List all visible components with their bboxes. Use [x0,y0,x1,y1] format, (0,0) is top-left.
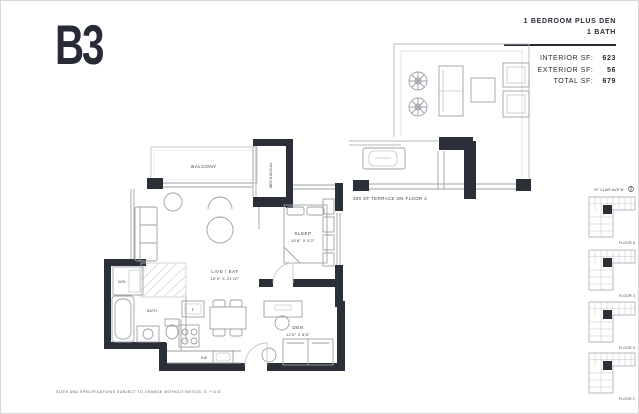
floor-plan-drawing: BALCONY MECHANICAL [1,1,639,414]
round-table [207,217,233,243]
bathtub [115,299,131,339]
bath-sink [143,329,153,339]
round-chair [164,193,182,211]
terrace-table [471,78,495,102]
arch-chair [208,197,232,209]
entry-vestibule-hatch [141,263,186,297]
disclaimer-text: SIZES AND SPECIFICATIONS SUBJECT TO CHAN… [56,390,222,394]
bbq-counter [363,148,405,169]
keyplan-floor-5 [589,197,635,237]
closet [323,199,334,214]
desk-chair [275,316,289,330]
sleep-dims: 10'6" X 9'2" [291,238,315,243]
keyplan-floor-5-label: FLOOR 5 [619,241,635,245]
den-label: DEN [292,325,303,330]
dining-table [210,300,246,336]
bedroom-door [273,263,293,283]
keyplan-floor-4-label: FLOOR 4 [619,294,635,298]
mechanical-room: MECHANICAL [253,139,293,208]
terrace-furniture [363,63,529,169]
fridge-label: F [192,308,195,312]
window-walls [131,185,340,342]
floorplan-sheet: B3 1 BEDROOM PLUS DEN 1 BATH INTERIOR SF… [0,0,639,414]
living-area [135,193,233,261]
den-plant [262,348,276,362]
terrace-walls [353,137,531,199]
terrace-note: 300 SF TERRACE ON FLOOR 2 [353,196,427,201]
keyplan-floor-3 [589,302,635,342]
toilet-bowl [166,325,178,339]
dishwasher-label: DW [201,356,208,360]
balcony-label: BALCONY [191,164,216,169]
live-eat-label: LIVE / EAT [211,269,238,274]
entry-door [245,343,267,365]
keyplan-floor-2-label: FLOOR 2 [619,397,635,401]
terrace-plant-1 [409,72,427,90]
keyplan-street-label: ST CLAIR AVE W [594,188,624,192]
terrace-plant-2 [409,98,427,116]
den-dims: 12'0" X 8'6" [286,332,310,337]
keyplan-floor-3-label: FLOOR 3 [619,346,635,350]
sleep-label: SLEEP [294,231,311,236]
keyplan-floor-4 [589,250,635,290]
washer-dryer-closet: W/D [113,267,143,295]
sofa [135,207,157,261]
wd-label: W/D [118,280,126,284]
mechanical-label: MECHANICAL [269,162,273,188]
north-arrow-icon [629,186,634,192]
bath-label: BATH [147,309,157,313]
desk [264,301,302,317]
bathroom [112,296,179,342]
live-eat-dims: 10'9" X 21'10" [210,276,239,281]
keyplan-column: ST CLAIR AVE W FLOOR 5 FLOOR 4 FLOOR 3 F… [589,186,635,401]
keyplan-floor-2 [589,353,635,393]
bath-vanity [137,326,159,342]
balcony: BALCONY [151,147,257,187]
